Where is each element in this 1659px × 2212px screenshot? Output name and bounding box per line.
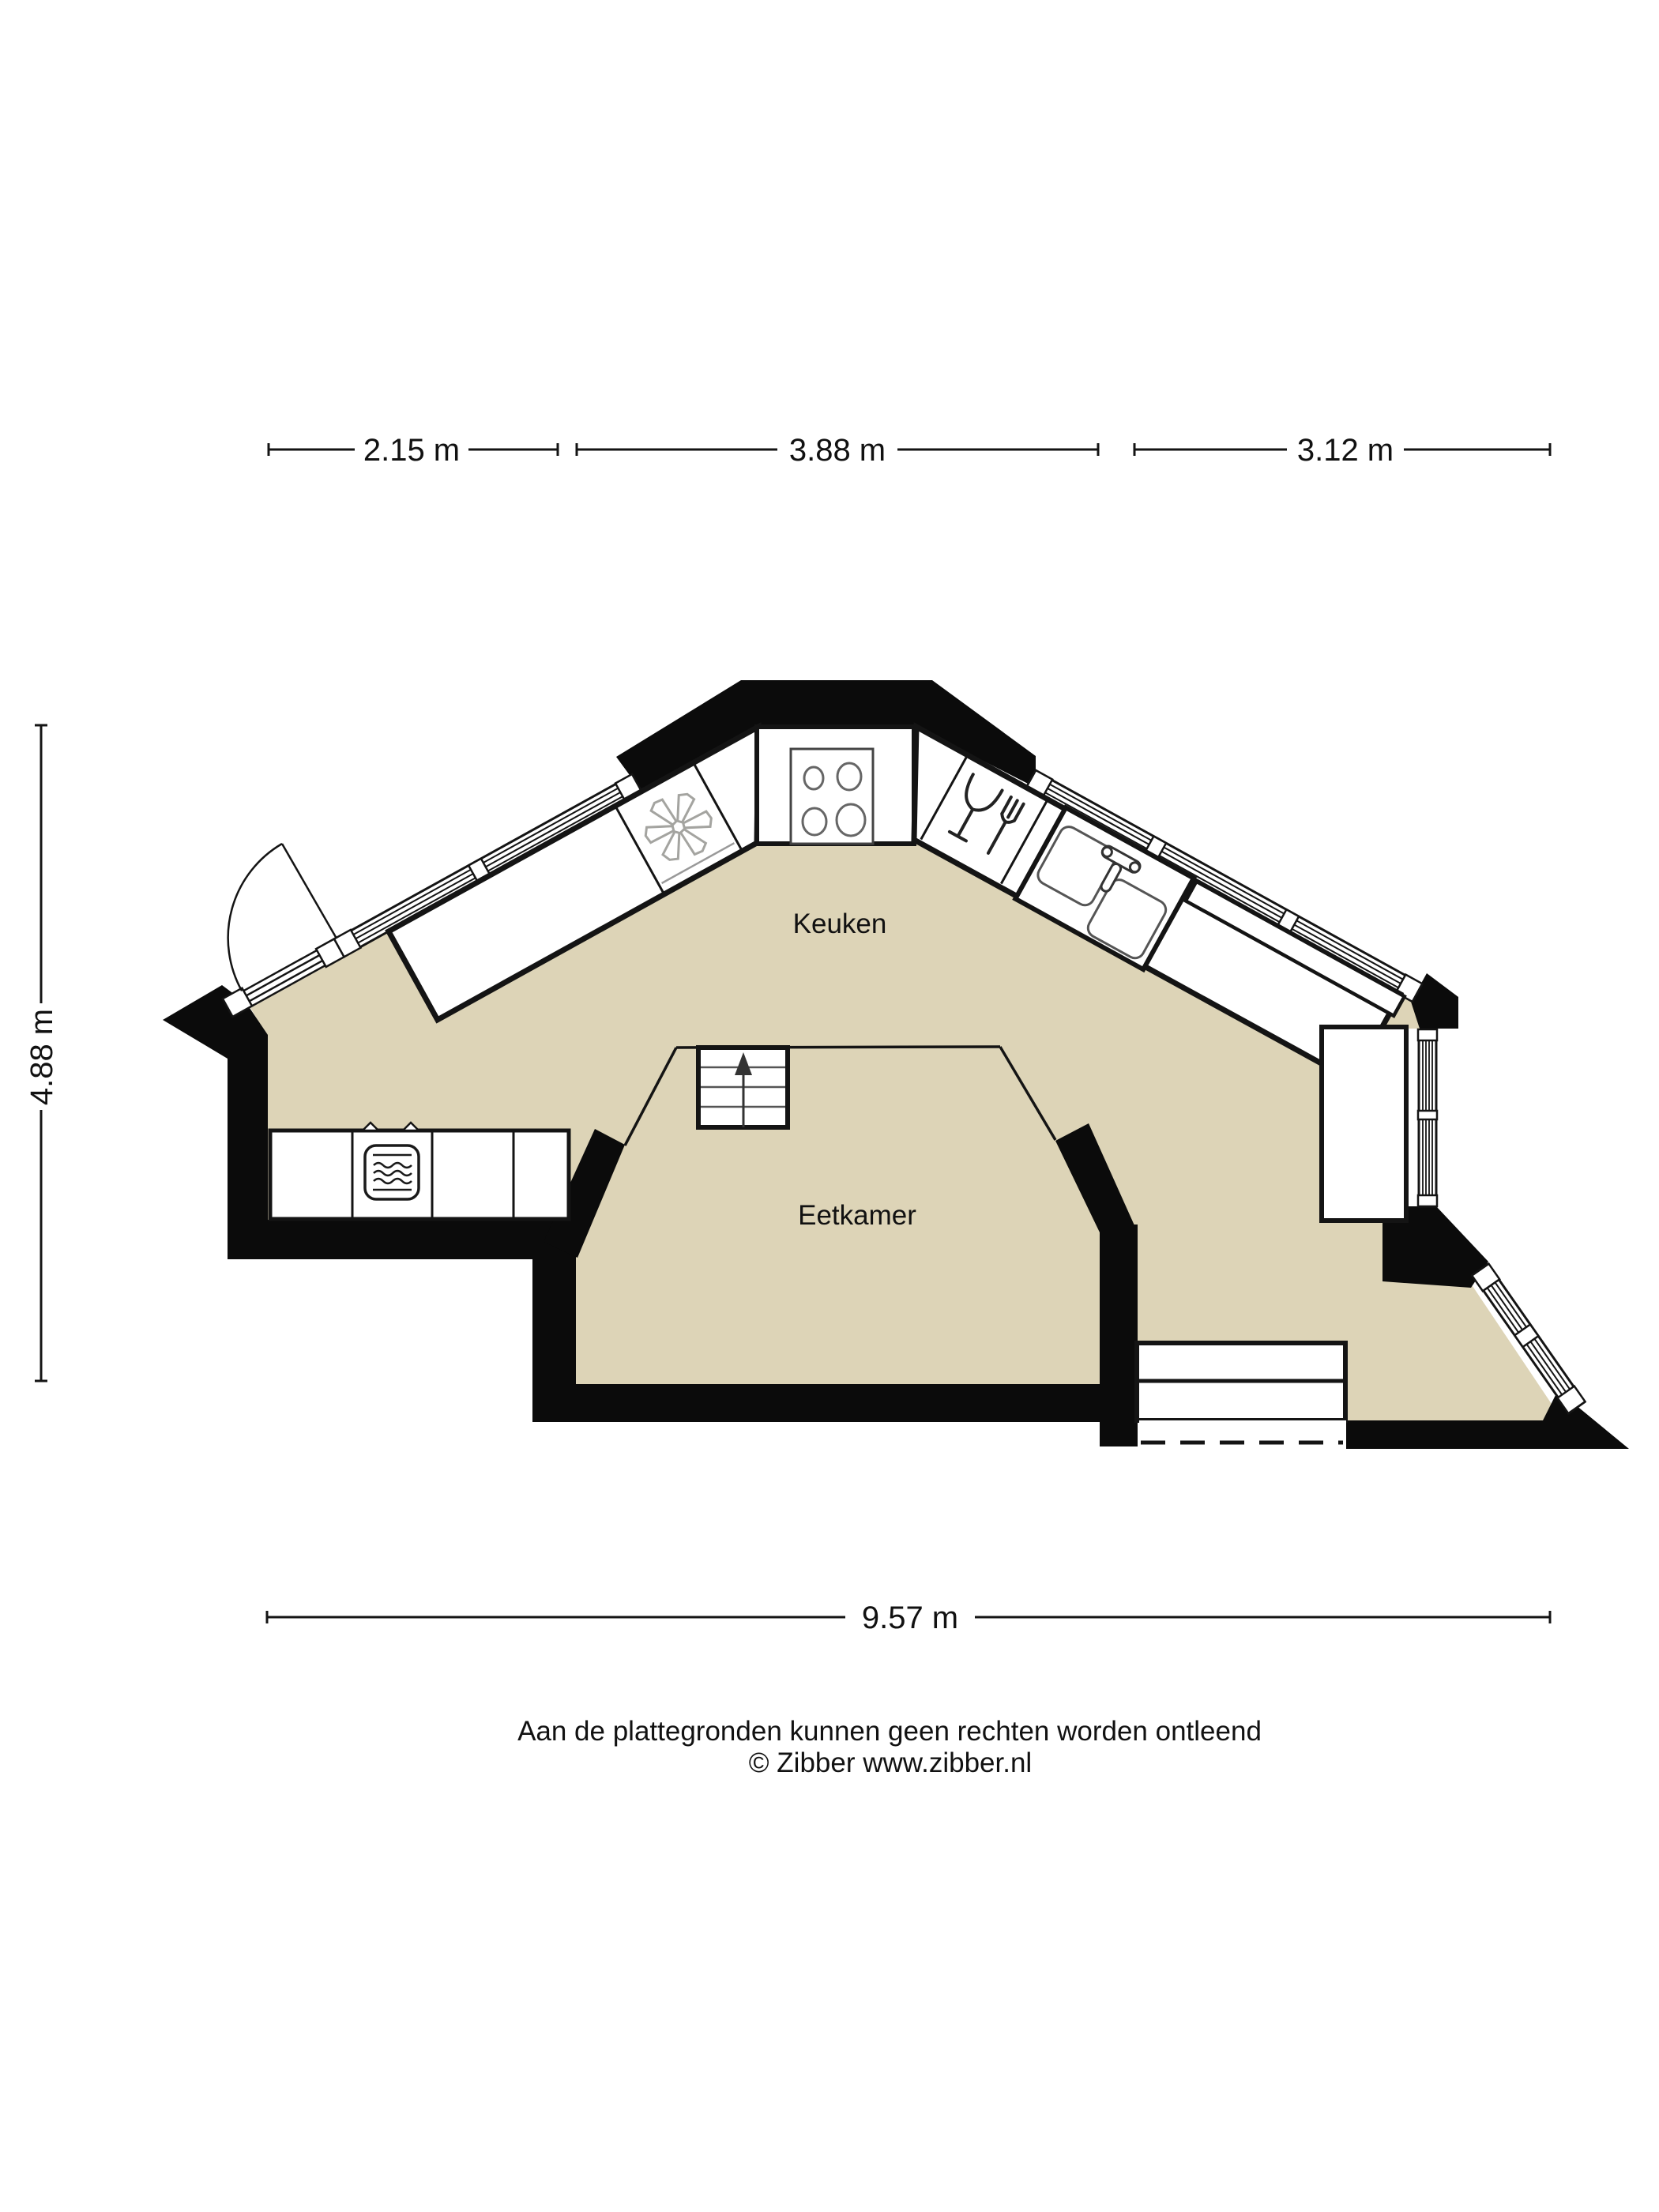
svg-text:Aan de plattegronden kunnen ge: Aan de plattegronden kunnen geen rechten… [517,1716,1262,1747]
svg-text:3.88 m: 3.88 m [789,433,886,468]
svg-text:Keuken: Keuken [793,908,887,939]
svg-text:© Zibber www.zibber.nl: © Zibber www.zibber.nl [749,1747,1032,1778]
svg-text:9.57 m: 9.57 m [862,1601,958,1635]
svg-text:3.12 m: 3.12 m [1297,433,1394,468]
svg-text:2.15 m: 2.15 m [363,433,460,468]
svg-text:4.88 m: 4.88 m [24,1009,59,1105]
svg-text:Eetkamer: Eetkamer [798,1200,916,1231]
